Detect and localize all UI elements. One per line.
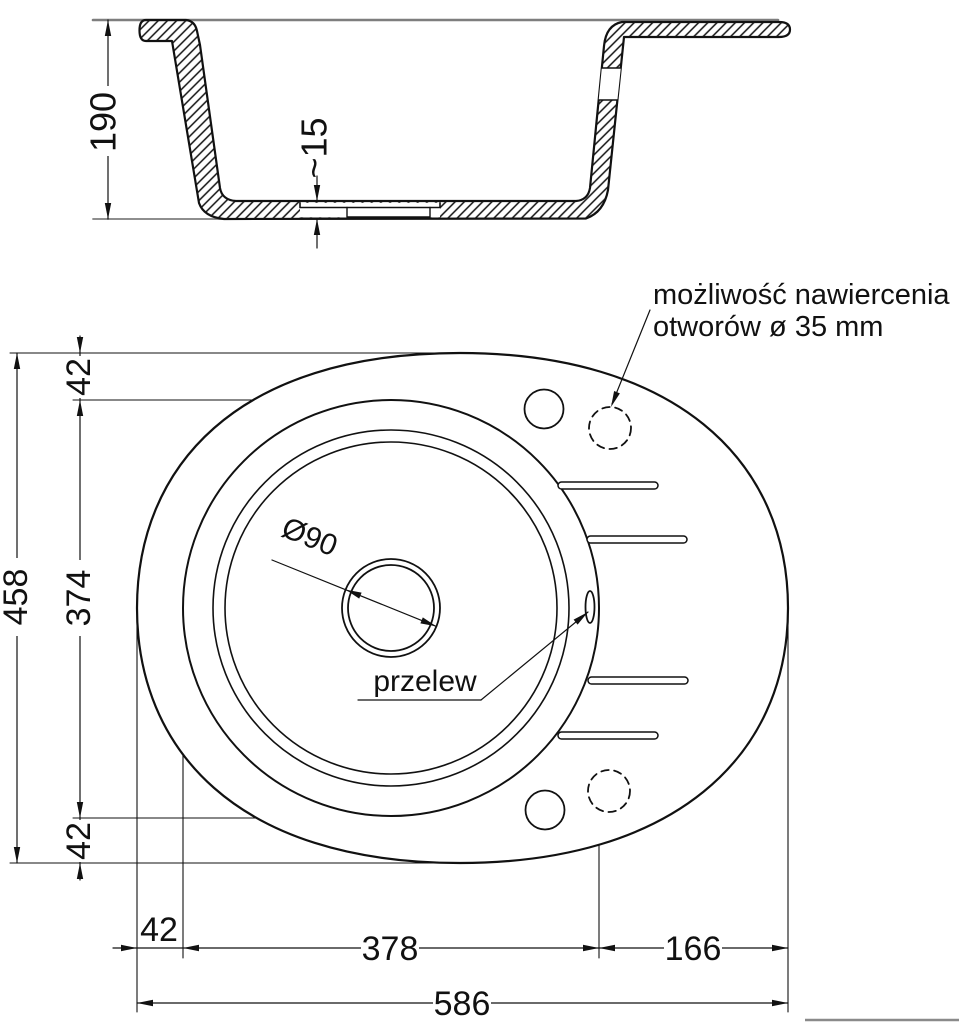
drill-note-line2: otworów ø 35 mm bbox=[653, 311, 883, 343]
dim-166-label: 166 bbox=[665, 930, 722, 968]
dim-190: 190 bbox=[83, 20, 124, 219]
top-view: Ø90 przelew możliwość nawiercenia otworó… bbox=[0, 279, 950, 1023]
dim-bottom-chain: 42 378 166 bbox=[113, 911, 788, 968]
dim-458-label: 458 bbox=[0, 569, 35, 626]
sink-outline bbox=[137, 353, 788, 863]
dim-42-top-label: 42 bbox=[60, 358, 98, 396]
groove-2 bbox=[587, 536, 687, 543]
dim-378-label: 378 bbox=[362, 930, 419, 968]
overflow-label: przelew bbox=[373, 665, 477, 698]
dim-458: 458 bbox=[0, 353, 35, 863]
drill-note-line1: możliwość nawiercenia bbox=[653, 279, 950, 311]
groove-1 bbox=[558, 482, 658, 489]
groove-4 bbox=[558, 732, 658, 739]
drill-note: możliwość nawiercenia otworów ø 35 mm bbox=[611, 279, 950, 407]
dim-586-label: 586 bbox=[434, 985, 491, 1023]
tap-hole-bottom bbox=[526, 791, 565, 830]
dim-42-bottom-label: 42 bbox=[60, 822, 98, 860]
dim-374-label: 374 bbox=[60, 570, 98, 627]
dim-42-left-label: 42 bbox=[140, 911, 178, 949]
overflow-window-section bbox=[599, 68, 621, 100]
dim-586: 586 bbox=[137, 985, 788, 1023]
dim-15-label: ~15 bbox=[294, 117, 335, 178]
groove-3 bbox=[588, 677, 688, 684]
tap-hole-top bbox=[525, 390, 564, 429]
drain-recess bbox=[300, 203, 440, 219]
section-body bbox=[140, 20, 791, 219]
drawing-canvas: 190 ~15 bbox=[0, 0, 959, 1023]
section-view: 190 ~15 bbox=[83, 20, 790, 248]
dim-left-chain: 42 374 42 bbox=[60, 336, 98, 880]
overflow-slot bbox=[586, 591, 595, 623]
sink-technical-drawing: 190 ~15 bbox=[0, 0, 959, 1023]
dim-floor-15: ~15 bbox=[294, 117, 335, 248]
dim-190-label: 190 bbox=[83, 92, 124, 152]
